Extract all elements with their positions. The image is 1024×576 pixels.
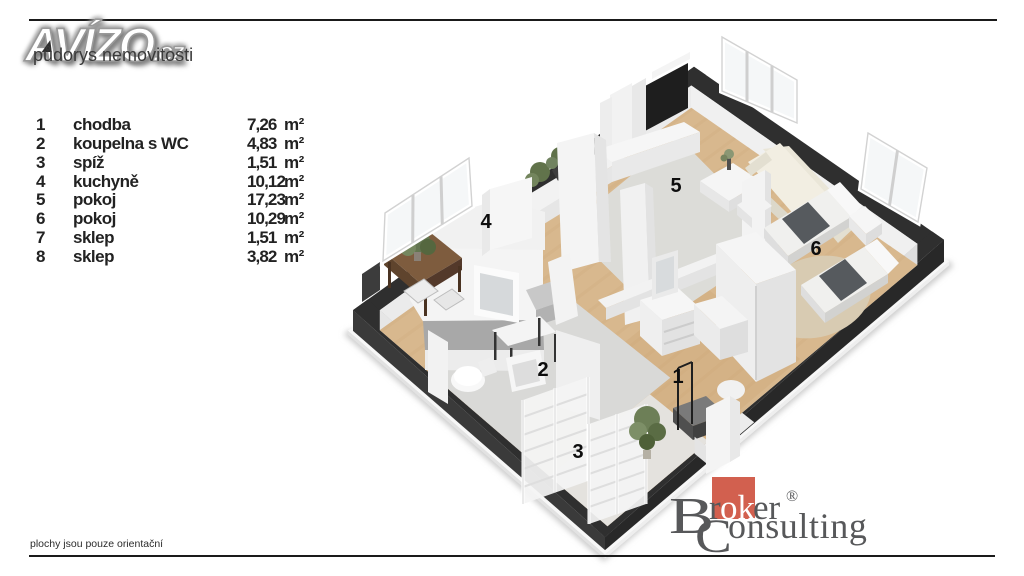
svg-text:1: 1 xyxy=(672,366,683,388)
svg-text:3: 3 xyxy=(572,441,583,463)
svg-text:5: 5 xyxy=(670,175,681,197)
svg-text:6: 6 xyxy=(810,238,821,260)
svg-text:2: 2 xyxy=(537,359,548,381)
svg-text:4: 4 xyxy=(480,211,492,233)
